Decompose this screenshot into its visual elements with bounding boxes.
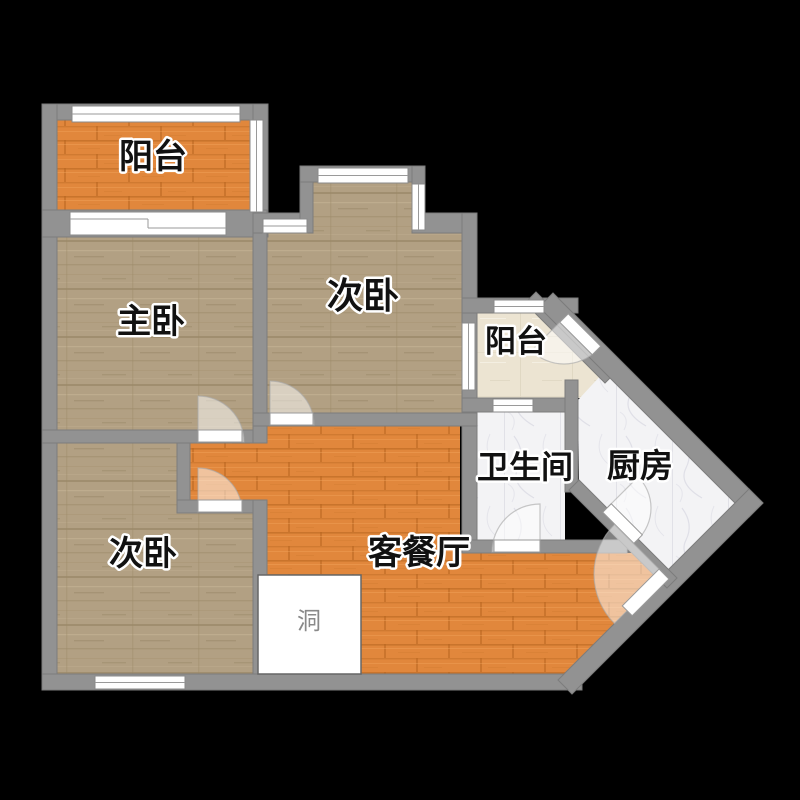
label-balcony-right: 阳台 bbox=[485, 324, 547, 360]
window bbox=[250, 120, 263, 212]
window bbox=[462, 323, 475, 390]
window bbox=[95, 676, 185, 689]
hole-square: 洞 bbox=[258, 575, 361, 674]
label-kitchen: 厨房 bbox=[607, 446, 673, 485]
label-bathroom: 卫生间 bbox=[477, 448, 573, 486]
label-master-bedroom: 主卧 bbox=[117, 302, 185, 342]
wall-segment bbox=[253, 210, 267, 443]
wall-segment bbox=[42, 104, 57, 690]
label-second-bedroom-bottom: 次卧 bbox=[109, 534, 177, 574]
floorplan-canvas: 洞 阳台 主卧 次卧 阳台 卫生间 厨房 次卧 客餐厅 bbox=[0, 0, 800, 800]
hole-label: 洞 bbox=[297, 607, 321, 635]
label-living-dining: 客餐厅 bbox=[368, 533, 470, 573]
window bbox=[72, 106, 240, 122]
window bbox=[318, 168, 408, 183]
label-balcony-top: 阳台 bbox=[119, 137, 187, 177]
window bbox=[263, 219, 307, 233]
label-second-bedroom-top: 次卧 bbox=[327, 276, 399, 317]
window bbox=[493, 399, 533, 412]
window bbox=[494, 300, 544, 313]
window bbox=[412, 184, 425, 230]
window-sliding bbox=[70, 212, 226, 235]
